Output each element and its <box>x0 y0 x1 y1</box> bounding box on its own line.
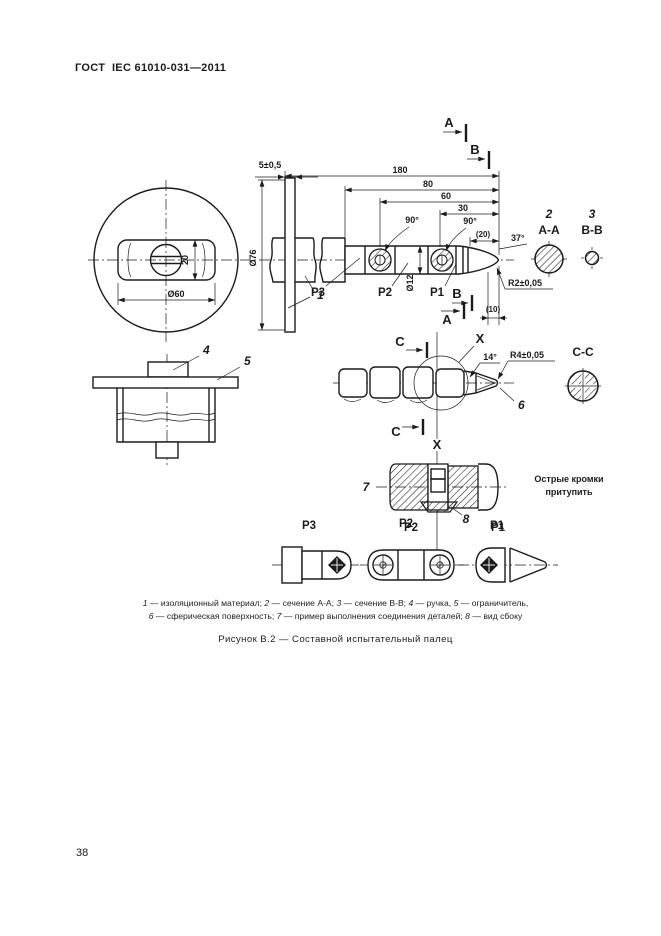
detail-x-view: С С X X 14° R4±0,05 6 <box>333 331 555 552</box>
finger-assembly: 180 80 60 30 90° 90° (20) 37° Ø12 P3 P2 <box>285 165 553 327</box>
dim-5: 5±0,5 <box>259 160 281 170</box>
page-header: ГОСТ IEC 61010-031—2011 <box>75 62 226 74</box>
item-8-label: 8 <box>463 512 470 526</box>
dim-20: 20 <box>180 255 190 265</box>
part-p1-label: P1 <box>430 287 445 299</box>
dim-20-paren: (20) <box>476 230 491 239</box>
cut-marker-c-bottom: С <box>391 424 401 439</box>
cut-marker-b-label: В <box>470 142 479 157</box>
dim-60: 60 <box>441 191 451 201</box>
technical-drawing: А В 20 Ø60 <box>0 100 661 600</box>
cut-marker-a-lower: А <box>442 312 452 327</box>
dim-80: 80 <box>423 179 433 189</box>
legend-line-1: 1 — изоляционный материал; 2 — сечение А… <box>30 597 641 610</box>
item-6-label: 6 <box>518 398 525 412</box>
side-view-disc: 5±0,5 Ø76 1 <box>248 160 345 332</box>
legend-line-2: 6 — сферическая поверхность; 7 — пример … <box>30 610 641 623</box>
angle-90-right: 90° <box>463 216 477 226</box>
sharp-edges-note-line1: Острые кромки <box>534 474 603 484</box>
angle-14: 14° <box>483 352 497 362</box>
dim-10-paren: (10) <box>486 305 501 314</box>
item-5-label: 5 <box>244 354 251 368</box>
figure-legend: 1 — изоляционный материал; 2 — сечение А… <box>30 597 641 623</box>
item-2-label: 2 <box>545 207 553 221</box>
detail-x-label: X <box>476 331 485 346</box>
x-axis-label: X <box>433 437 442 452</box>
section-aa-view: 2 А-А <box>531 207 567 277</box>
item-3-label: 3 <box>589 207 596 221</box>
front-view-disc: 20 Ø60 <box>94 180 238 342</box>
dim-180: 180 <box>392 165 407 175</box>
section-cc-view: С-С <box>565 345 601 404</box>
item-7-label: 7 <box>363 480 371 494</box>
cut-marker-c-top: С <box>395 334 405 349</box>
handle-limiter-view: 4 5 <box>93 343 251 468</box>
sharp-edges-note-line2: притупить <box>545 487 592 497</box>
item-4-label: 4 <box>202 343 210 357</box>
radius-r2: R2±0,05 <box>508 278 542 288</box>
part-row-p1-label: P1 <box>490 520 505 532</box>
figure-caption: Рисунок В.2 — Составной испытательный па… <box>30 634 641 645</box>
section-cut-markers-top: А В <box>443 115 489 169</box>
part-p3-label: P3 <box>311 287 325 299</box>
radius-r4: R4±0,05 <box>510 350 544 360</box>
part-p2-label: P2 <box>378 287 392 299</box>
dim-d12: Ø12 <box>405 274 415 291</box>
dim-d76: Ø76 <box>248 249 258 266</box>
dim-d60: Ø60 <box>167 289 184 299</box>
cut-marker-b-lower: В <box>452 286 461 301</box>
section-bb-title: В-В <box>581 223 603 237</box>
dim-30: 30 <box>458 203 468 213</box>
part-row-p3-label: P3 <box>302 520 316 532</box>
section-cc-title: С-С <box>572 345 594 359</box>
section-aa-title: А-А <box>538 223 560 237</box>
angle-37: 37° <box>511 233 525 243</box>
angle-90-left: 90° <box>405 215 419 225</box>
page-number: 38 <box>76 847 88 859</box>
document-page: ГОСТ IEC 61010-031—2011 А В <box>0 0 661 936</box>
cut-marker-a-label: А <box>444 115 454 130</box>
part-row-p2-label: P2 <box>399 518 413 530</box>
section-bb-view: 3 В-В <box>581 207 603 269</box>
